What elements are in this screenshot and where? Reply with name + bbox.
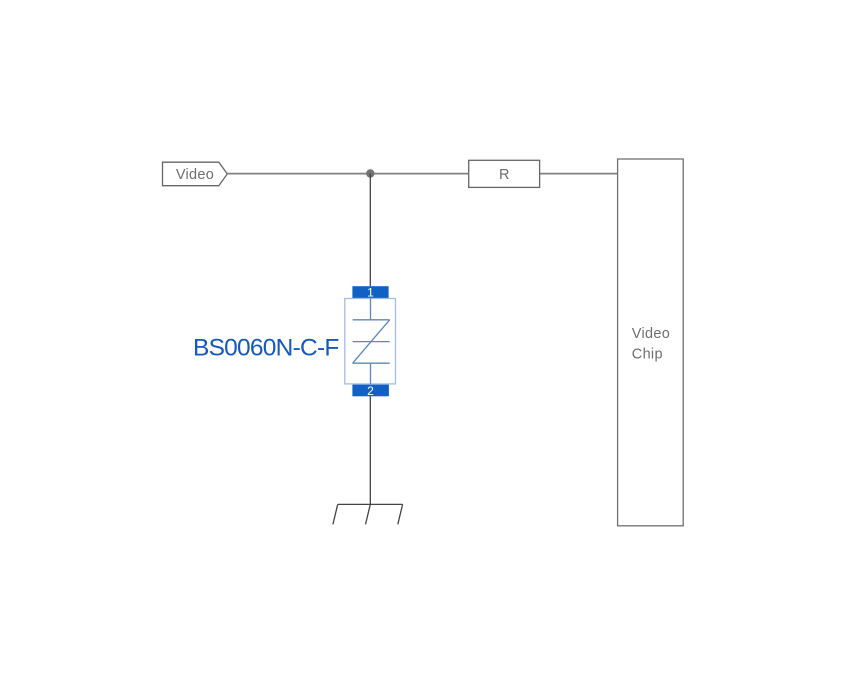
svg-text:BS0060N-C-F: BS0060N-C-F (193, 335, 339, 362)
svg-text:2: 2 (367, 384, 374, 398)
svg-text:1: 1 (367, 286, 374, 300)
svg-text:Video: Video (176, 167, 214, 183)
svg-text:R: R (499, 167, 509, 183)
svg-text:Chip: Chip (632, 346, 663, 362)
svg-text:Video: Video (632, 326, 670, 342)
